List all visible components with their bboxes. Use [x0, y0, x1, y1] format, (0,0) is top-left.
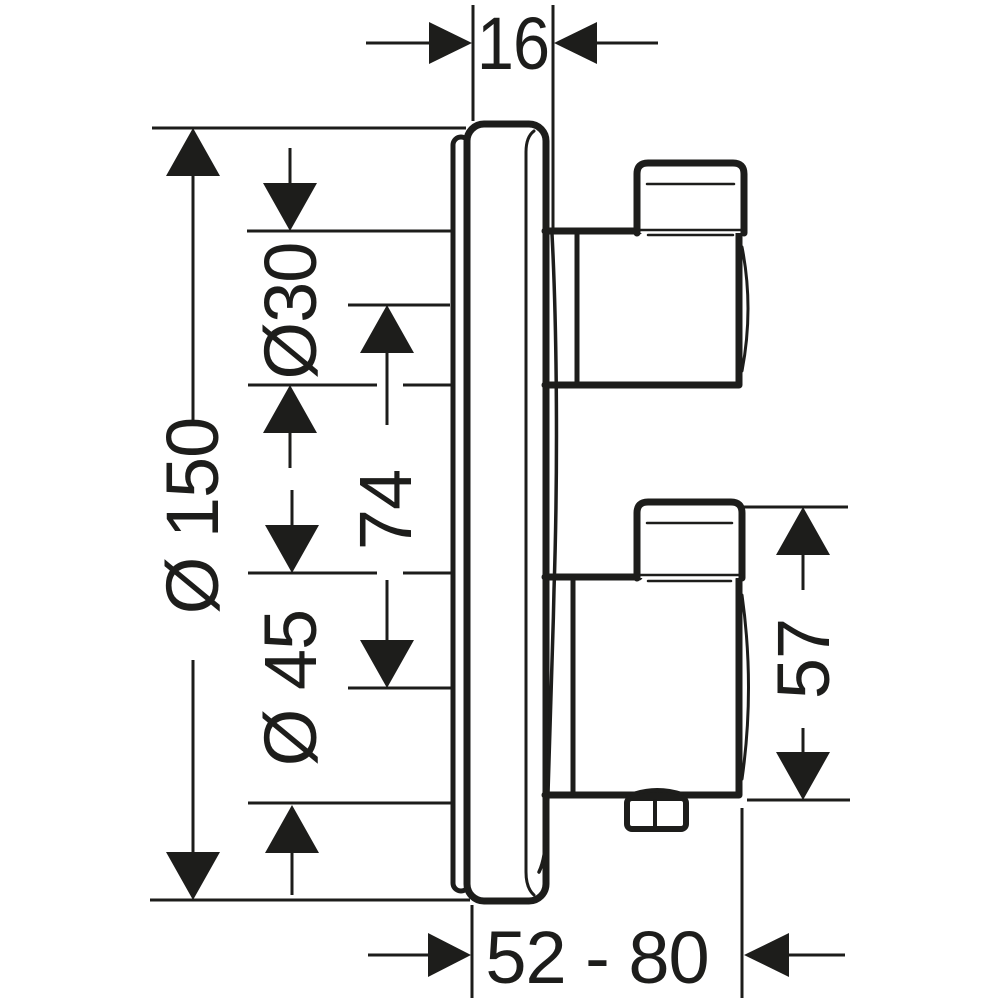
- dim-label-upper-handle-diameter: Ø30: [249, 243, 332, 380]
- arrow-left-icon: [744, 933, 789, 977]
- dim-lower-handle-depth: 57: [744, 507, 850, 800]
- arrow-up-icon: [265, 805, 319, 853]
- arrow-down-icon: [776, 752, 830, 800]
- dim-label-plate-thickness: 16: [477, 2, 549, 85]
- lower-handle-bulge: [742, 595, 749, 779]
- dim-installation-depth-range: 52 - 80: [368, 808, 845, 999]
- dim-label-lower-handle-depth: 57: [762, 619, 845, 699]
- lower-handle: [545, 502, 749, 795]
- arrow-down-icon: [263, 183, 317, 231]
- arrow-down-icon: [265, 525, 319, 573]
- upper-handle-body-edge: [545, 233, 739, 385]
- arrow-up-icon: [776, 507, 830, 555]
- upper-handle: [545, 163, 748, 385]
- arrow-down-icon: [360, 640, 414, 688]
- arrow-up-icon: [360, 305, 414, 353]
- technical-drawing-page: 16 Ø 150 Ø30 74: [0, 0, 1000, 1000]
- arrow-right-icon: [429, 22, 472, 64]
- dim-upper-handle-diameter: Ø30: [247, 148, 452, 468]
- dim-label-escutcheon-diameter: Ø 150: [151, 418, 234, 615]
- dim-label-handle-axis-spacing: 74: [344, 470, 427, 550]
- arrow-up-icon: [166, 128, 220, 176]
- lower-handle-grip: [637, 502, 742, 578]
- technical-drawing: 16 Ø 150 Ø30 74: [0, 0, 1000, 1000]
- arrow-up-icon: [263, 385, 317, 433]
- escutcheon-plate: [453, 124, 556, 901]
- upper-handle-bulge: [742, 247, 748, 371]
- upper-handle-grip: [637, 163, 744, 233]
- arrow-right-icon: [428, 933, 471, 977]
- dim-label-lower-handle-diameter: Ø 45: [249, 610, 332, 766]
- arrow-left-icon: [554, 22, 597, 64]
- arrow-down-icon: [166, 852, 220, 900]
- escutcheon-body: [467, 124, 546, 901]
- outlet-connector: [627, 790, 686, 829]
- dim-handle-axis-spacing: 74: [344, 305, 452, 688]
- dim-label-installation-depth-range: 52 - 80: [485, 916, 708, 999]
